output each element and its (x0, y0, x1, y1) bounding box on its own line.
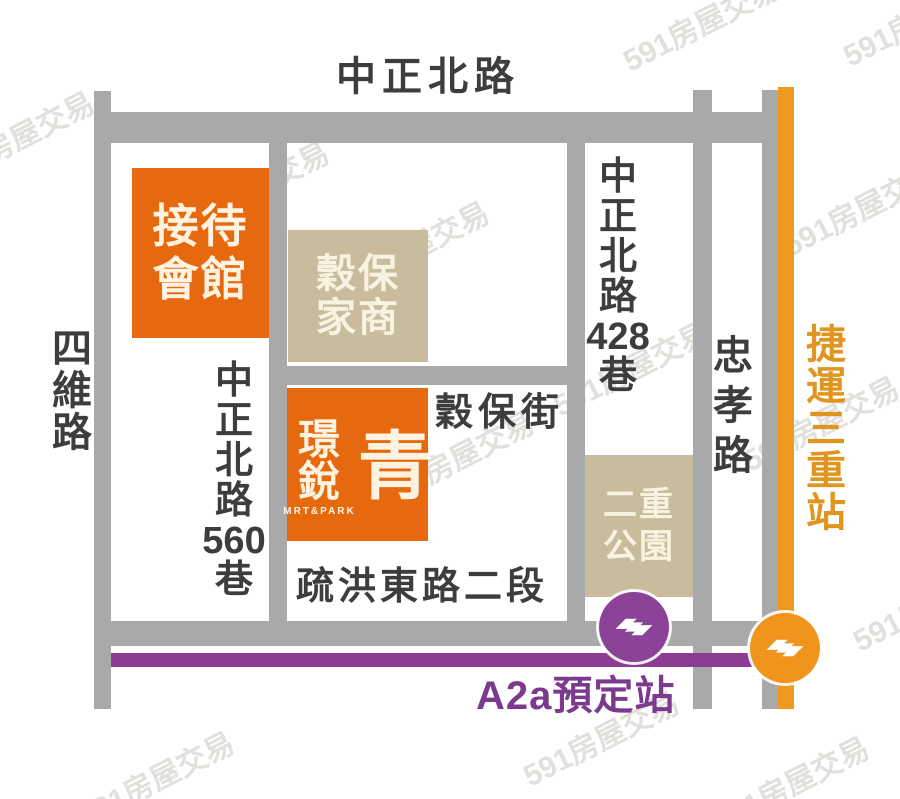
project-name-accent: 青 (358, 434, 432, 501)
label-siwei-road: 四 維 路 (48, 328, 96, 454)
label-mrt-planned-station-a2a: A2a預定站 (476, 675, 675, 717)
project-name-main: 璟銳 (283, 419, 355, 503)
road-zhongzheng-north (94, 112, 778, 143)
project-logo-box: 璟銳 MRT&PARK 青 (287, 388, 428, 541)
location-map: 591房屋交易 591房屋交易 591房屋交易 591房屋交易 591房屋交易 … (0, 0, 900, 799)
gubao-school-box: 穀保 家商 (288, 230, 428, 362)
label-lane-560: 中 正 北 路 560 巷 (201, 362, 267, 601)
mrt-station-badge-planned (599, 592, 669, 662)
reception-hall-box: 接待 會館 (132, 168, 269, 338)
watermark: 591房屋交易 (844, 544, 900, 660)
label-mrt-sanchong-station: 捷 運 三 重 站 (801, 324, 851, 534)
watermark: 591房屋交易 (69, 719, 241, 799)
watermark: 591房屋交易 (704, 724, 876, 799)
mrt-planned-line (111, 653, 787, 667)
label-zhongzheng-north-road: 中正北路 (336, 56, 520, 98)
label-lane-428: 中 正 北 路 428 巷 (585, 158, 651, 397)
taipei-metro-logo-icon (611, 604, 657, 650)
watermark: 591房屋交易 (0, 79, 101, 195)
taipei-metro-logo-icon (762, 625, 808, 671)
label-shuhong-east-road: 疏洪東路二段 (296, 568, 548, 608)
erchong-park-box: 二重 公園 (585, 455, 693, 597)
project-name-column: 璟銳 MRT&PARK (283, 419, 355, 517)
label-gubao-street: 穀保街 (435, 394, 564, 434)
watermark: 591房屋交易 (834, 0, 900, 75)
project-subtitle: MRT&PARK (283, 507, 355, 517)
road-siwei (94, 91, 111, 709)
mrt-station-badge-sanchong (750, 613, 820, 683)
road-zhongxiao (693, 90, 712, 709)
watermark: 591房屋交易 (614, 0, 786, 80)
road-gubao-street (269, 366, 585, 385)
road-shuhong-east (94, 621, 780, 646)
label-zhongxiao-road: 忠 孝 路 (711, 331, 755, 481)
